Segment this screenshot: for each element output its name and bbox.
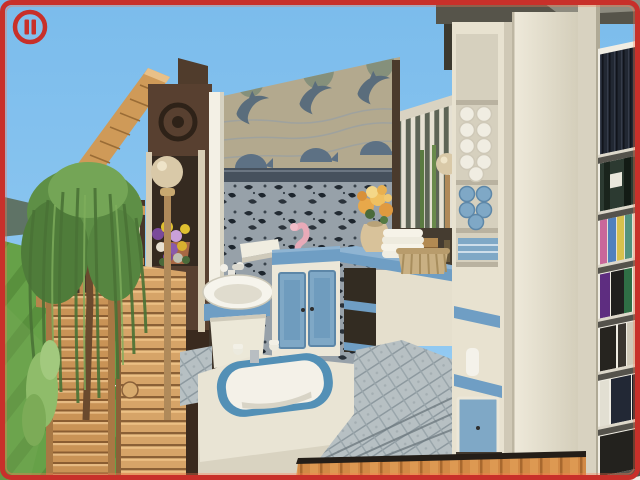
bookshelf[interactable] xyxy=(578,0,640,480)
open-shelf xyxy=(344,268,376,354)
lower-cabinet[interactable] xyxy=(458,398,498,454)
towel-shelf-tower[interactable] xyxy=(452,22,512,480)
pause-button[interactable] xyxy=(15,12,45,42)
wicker-basket[interactable] xyxy=(396,248,450,274)
front-pillar xyxy=(512,12,580,480)
game-viewport xyxy=(0,0,640,480)
vanity-cabinet[interactable] xyxy=(272,246,340,356)
